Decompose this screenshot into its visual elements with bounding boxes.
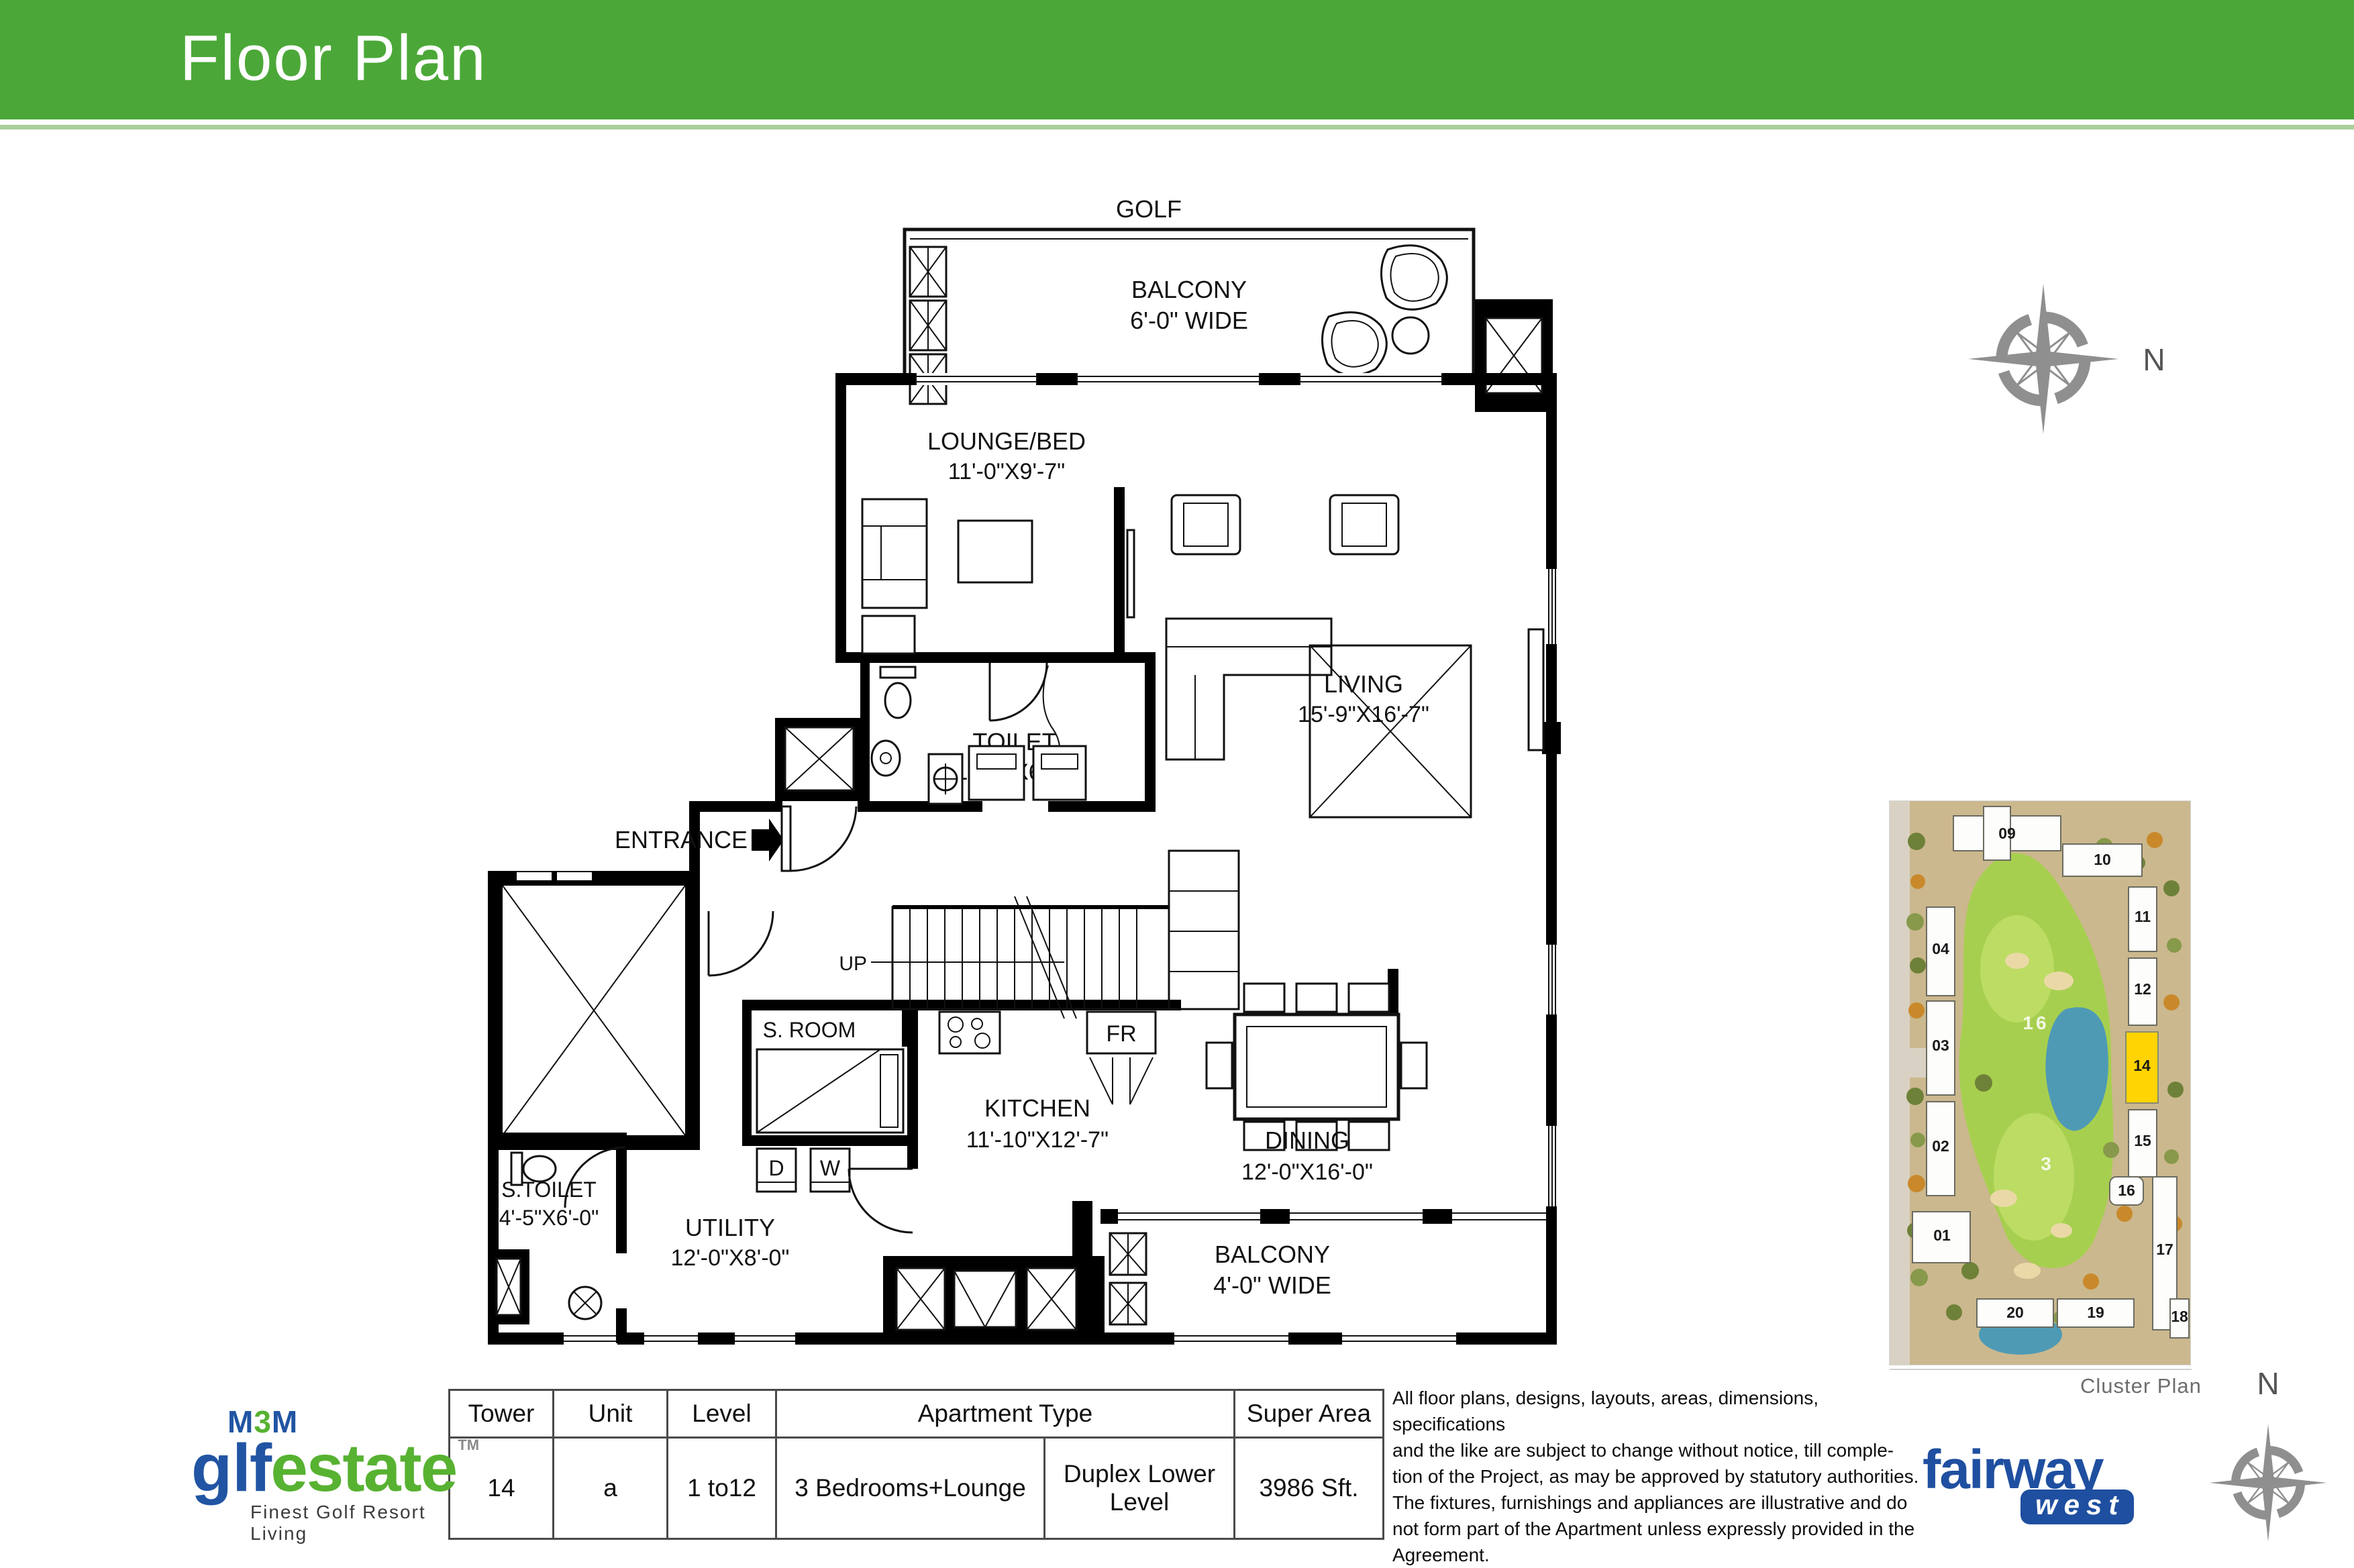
armchair-icon [1172,495,1398,554]
course-hole-3: 3 [2041,1153,2054,1174]
balcony-bottom: BALCONY 4'-0" WIDE [1110,1233,1331,1324]
building-17: 17 [2156,1241,2173,1258]
basin-icon [872,741,900,776]
shaft-box [775,718,864,801]
col-header-unit: Unit [554,1390,668,1438]
fridge-label: FR [1106,1021,1136,1047]
col-header-super-area: Super Area [1235,1390,1384,1438]
cluster-plan-caption: Cluster Plan [2080,1374,2202,1398]
l-sofa-icon [1166,619,1331,760]
disclaimer-line: tion of the Project, as may be approved … [1392,1463,1936,1489]
entrance: ENTRANCE [615,806,856,871]
fridge-box: FR [1087,1012,1156,1104]
balcony-bottom-dim: 4'-0" WIDE [1213,1271,1331,1299]
window-icon [916,373,1442,385]
kitchen-dim: 11'-10"X12'-7" [966,1127,1109,1153]
dining-dim: 12'-0"X16'-0" [1241,1159,1373,1185]
cell-super-area: 3986 Sft. [1235,1438,1384,1539]
north-label: N [2257,1366,2279,1401]
building-14: 14 [2133,1057,2151,1074]
golf-lf: lf [232,1434,270,1502]
dining-label: DINING [1265,1127,1349,1154]
washer-box: W [811,1149,850,1192]
compass-rose-top: N [1963,275,2184,443]
cell-unit: a [554,1438,668,1539]
disclaimer-text: All floor plans, designs, layouts, areas… [1392,1385,1936,1568]
lounge-room: LOUNGE/BED 11'-0"X9'-7" [862,427,1134,660]
col-header-apartment-type: Apartment Type [776,1390,1235,1438]
basin-icon [569,1287,601,1319]
building-11: 11 [2135,908,2151,925]
service-shaft-top [1475,299,1553,412]
s-room-label: S. ROOM [763,1018,856,1042]
disclaimer-line: and the like are subject to change witho… [1392,1437,1936,1463]
fairway-west-logo: fairway west [1923,1443,2137,1524]
utility-dim: 12'-0"X8'-0" [671,1245,790,1271]
golfestate-wordmark: g lf estate TM [191,1434,446,1502]
walls [488,373,1561,1345]
elevator-core [488,871,700,1150]
west-badge: west [2020,1489,2134,1524]
estate-word: estate [270,1434,456,1502]
service-shafts-bottom [883,1256,1105,1342]
utility-room: UTILITY 12'-0"X8'-0" [671,1214,790,1271]
wc-icon [511,1153,556,1185]
building-01: 01 [1933,1226,1951,1244]
building-02: 02 [1932,1137,1949,1155]
cell-level: 1 to12 [668,1438,776,1539]
m3m-tagline: Finest Golf Resort Living [250,1502,446,1545]
utility-label: UTILITY [685,1214,775,1241]
building-09: 09 [1998,825,2016,842]
disclaimer-line: not form part of the Apartment unless ex… [1392,1516,1936,1542]
lobby-door [709,911,773,976]
entrance-door-leaf [782,806,790,871]
cluster-plan-map: 09 10 04 03 02 01 11 12 14 15 16 17 18 2… [1889,800,2191,1365]
entrance-label: ENTRANCE [615,826,748,853]
divider-line [1890,1369,2192,1370]
building-20: 20 [2006,1304,2024,1321]
stair-landing-shelf [1169,851,1239,1009]
golf-side-label: GOLF [1116,195,1182,223]
building-12: 12 [2134,980,2151,998]
trademark-symbol: TM [458,1436,479,1454]
fan-symbol-icon [929,754,962,804]
balcony-bottom-label: BALCONY [1215,1241,1330,1268]
s-toilet-dim: 4'-5"X6'-0" [499,1206,599,1230]
servant-room: S. ROOM 9'-0"X5'-0" [757,1018,903,1133]
center-table-icon [958,521,1032,582]
m3m-golfestate-logo: M3M g lf estate TM Finest Golf Resort Li… [191,1406,446,1545]
building-04: 04 [1932,940,1949,957]
cell-apartment-subtype: Duplex Lower Level [1045,1438,1235,1539]
cell-apartment-type: 3 Bedrooms+Lounge [776,1438,1045,1539]
console-icon [1529,629,1543,750]
shaft-box [488,1249,529,1324]
page-title: Floor Plan [180,23,487,94]
building-10: 10 [2094,851,2111,868]
unit-summary-table: Tower Unit Level Apartment Type Super Ar… [448,1389,1384,1540]
building-18: 18 [2171,1308,2188,1325]
compass-rose-bottom: N [2204,1362,2332,1557]
building-16: 16 [2118,1182,2135,1199]
course-hole-16: 16 [2023,1012,2049,1033]
golf-g: g [191,1434,231,1502]
planter-icon [1110,1233,1146,1324]
header-bar: Floor Plan [0,0,2354,119]
entrance-arrow-icon [752,819,784,861]
building-03: 03 [1932,1037,1949,1054]
sofa-bed-icon [862,499,927,654]
disclaimer-line: All floor plans, designs, layouts, areas… [1392,1385,1936,1437]
entrance-door-arc [790,806,856,871]
dryer-label: D [768,1156,784,1180]
dryer-box: D [757,1149,796,1192]
lounge-label: LOUNGE/BED [927,427,1086,455]
living-dim: 15'-9"X16'-7" [1298,702,1429,727]
stairs-up-label: UP [839,953,867,975]
wc-icon [880,667,915,718]
floor-plan-drawing: GOLF BALCONY 6'-0" WIDE [470,168,1570,1375]
balcony-top-label: BALCONY [1131,276,1247,303]
north-label: N [2143,342,2165,377]
living-label: LIVING [1324,670,1403,698]
tv-icon [1127,530,1134,617]
col-header-tower: Tower [450,1390,554,1438]
servant-toilet: S.TOILET 4'-5"X6'-0" [488,1147,625,1324]
table-row: 14 a 1 to12 3 Bedrooms+Lounge Duplex Low… [450,1438,1384,1539]
balcony-top-dim: 6'-0" WIDE [1130,307,1248,334]
col-header-level: Level [668,1390,776,1438]
building-15: 15 [2134,1132,2151,1149]
disclaimer-line: The fixtures, furnishings and appliances… [1392,1489,1936,1516]
header-accent-band [0,125,2354,129]
washer-label: W [820,1156,841,1180]
building-19: 19 [2087,1304,2104,1321]
staircase: UP [839,851,1239,1018]
lounge-dim: 11'-0"X9'-7" [948,459,1065,484]
dining-room: DINING 12'-0"X16'-0" [1207,984,1427,1185]
bed-icon [757,1049,903,1133]
kitchen-label: KITCHEN [984,1094,1090,1122]
stove-icon [939,1012,1000,1053]
kitchen-utility-door [849,1169,913,1233]
tv-partition [1114,487,1125,660]
